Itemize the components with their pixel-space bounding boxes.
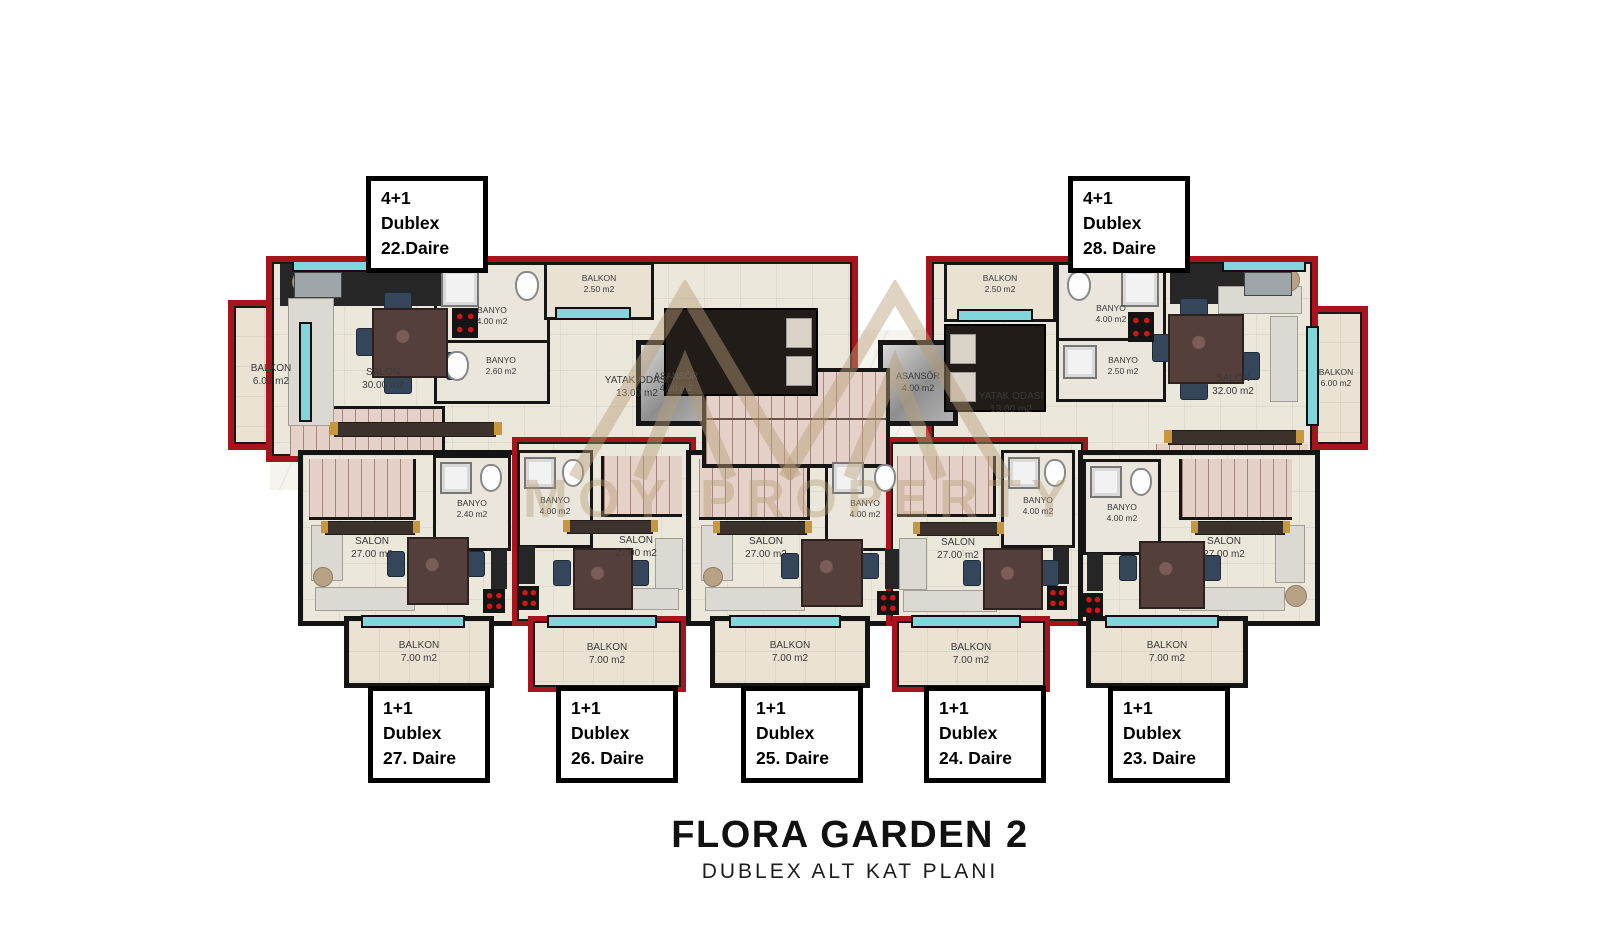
shower bbox=[524, 457, 556, 489]
tv-console-end bbox=[1283, 521, 1290, 533]
room-area: 2.50 m2 bbox=[947, 284, 1053, 295]
room-name: SALON bbox=[328, 366, 438, 379]
sofa bbox=[315, 587, 415, 611]
room-area: 7.00 m2 bbox=[587, 654, 628, 667]
unit-tag-28: 4+1 Dublex 28. Daire bbox=[1068, 176, 1190, 273]
pouf bbox=[1285, 585, 1307, 607]
unit-27-balkon: BALKON 7.00 m2 bbox=[344, 616, 494, 688]
tag-line: 23. Daire bbox=[1123, 746, 1215, 771]
chair bbox=[467, 551, 485, 577]
tv-console-end bbox=[413, 521, 420, 533]
room-name: BANYO bbox=[436, 498, 508, 509]
room-area: 2.40 m2 bbox=[436, 509, 508, 520]
tv-console bbox=[1195, 521, 1285, 535]
pillow bbox=[950, 334, 976, 364]
shower bbox=[1121, 269, 1159, 307]
room-label-banyo-23: BANYO 4.00 m2 bbox=[1086, 502, 1158, 524]
unit-tag-23: 1+1 Dublex 23. Daire bbox=[1108, 686, 1230, 783]
tag-line: 24. Daire bbox=[939, 746, 1031, 771]
room-name: BALKON bbox=[251, 362, 292, 375]
unit-tag-24: 1+1 Dublex 24. Daire bbox=[924, 686, 1046, 783]
unit-25-balkon: BALKON 7.00 m2 bbox=[710, 616, 870, 688]
chair bbox=[963, 560, 981, 586]
stove-hob bbox=[1047, 586, 1067, 610]
room-area: 4.00 m2 bbox=[520, 506, 590, 517]
sofa bbox=[705, 587, 805, 611]
chair bbox=[861, 553, 879, 579]
unit-23-balkon: BALKON 7.00 m2 bbox=[1086, 616, 1248, 688]
room-label-balkon-26: BALKON 7.00 m2 bbox=[587, 641, 628, 667]
kitchen-sink bbox=[1244, 272, 1292, 296]
window-strip bbox=[957, 309, 1033, 322]
room-name: BALKON bbox=[1147, 639, 1188, 652]
unit-tag-25: 1+1 Dublex 25. Daire bbox=[741, 686, 863, 783]
tv-console-end bbox=[321, 521, 328, 533]
room-name: BALKON bbox=[1319, 367, 1354, 378]
window-strip bbox=[1306, 326, 1319, 426]
room-name: BALKON bbox=[547, 273, 651, 284]
room-name: ASANSÖR bbox=[654, 371, 698, 383]
tag-line: Dublex bbox=[571, 721, 663, 746]
stairs bbox=[897, 456, 996, 517]
window-strip bbox=[547, 615, 657, 628]
unit-25: BANYO 4.00 m2 SALON 27.00 m2 bbox=[686, 450, 918, 626]
tag-line: 22.Daire bbox=[381, 236, 473, 261]
pouf bbox=[703, 567, 723, 587]
room-area: 2.50 m2 bbox=[1083, 366, 1163, 377]
tv-console bbox=[717, 521, 807, 535]
room-area: 7.00 m2 bbox=[399, 652, 440, 665]
room-area: 13.00 m2 bbox=[946, 403, 1076, 416]
unit-24-balkon: BALKON 7.00 m2 bbox=[892, 616, 1050, 692]
stove-hob bbox=[1083, 593, 1103, 617]
tag-line: Dublex bbox=[1083, 211, 1175, 236]
toilet bbox=[515, 271, 539, 301]
room-name: BALKON bbox=[770, 639, 811, 652]
tv-console-end bbox=[651, 520, 658, 532]
room-name: SALON bbox=[591, 534, 681, 547]
tag-line: Dublex bbox=[383, 721, 475, 746]
elevator-right-label: ASANSÖR 4.00 m2 bbox=[896, 371, 940, 394]
stairs bbox=[699, 459, 810, 520]
chair bbox=[631, 560, 649, 586]
room-area: 7.00 m2 bbox=[770, 652, 811, 665]
tv-console-end bbox=[713, 521, 720, 533]
tv-console-end bbox=[1191, 521, 1198, 533]
room-area: 7.00 m2 bbox=[951, 654, 992, 667]
room-area: 4.00 m2 bbox=[437, 316, 547, 327]
tag-line: 26. Daire bbox=[571, 746, 663, 771]
kitchen-counter bbox=[491, 549, 507, 589]
chair bbox=[1041, 560, 1059, 586]
window-strip bbox=[555, 307, 631, 320]
shower bbox=[440, 462, 472, 494]
room-area: 27.00 m2 bbox=[913, 549, 1003, 562]
stairs-divider bbox=[706, 418, 886, 420]
window-strip bbox=[299, 322, 312, 422]
room-area: 4.00 m2 bbox=[1086, 513, 1158, 524]
tag-line: 4+1 bbox=[1083, 186, 1175, 211]
room-name: BALKON bbox=[399, 639, 440, 652]
room-name: BALKON bbox=[587, 641, 628, 654]
room-label-balkon-25: BALKON 7.00 m2 bbox=[770, 639, 811, 665]
tag-line: 1+1 bbox=[1123, 696, 1215, 721]
toilet bbox=[1067, 271, 1091, 301]
room-name: BANYO bbox=[828, 498, 902, 509]
tag-line: Dublex bbox=[1123, 721, 1215, 746]
toilet bbox=[1130, 468, 1152, 496]
room-area: 6.00 m2 bbox=[251, 375, 292, 388]
window-strip bbox=[1105, 615, 1219, 628]
floor-plan-canvas: BALKON 6.00 m2 BALKON 6.00 m2 BANYO 4.00… bbox=[0, 0, 1600, 937]
room-name: SALON bbox=[913, 536, 1003, 549]
title-block: FLORA GARDEN 2 DUBLEX ALT KAT PLANI bbox=[450, 814, 1250, 884]
room-area: 2.60 m2 bbox=[461, 366, 541, 377]
pillow bbox=[786, 318, 812, 348]
toilet bbox=[480, 464, 502, 492]
kitchen-counter bbox=[519, 546, 535, 584]
room-area: 27.00 m2 bbox=[1179, 548, 1269, 561]
room-label-salon-23: SALON 27.00 m2 bbox=[1179, 535, 1269, 561]
tv-console-end bbox=[997, 522, 1004, 534]
room-name: BANYO bbox=[461, 355, 541, 366]
stove-hob bbox=[483, 589, 505, 613]
room-label-banyo-27: BANYO 2.40 m2 bbox=[436, 498, 508, 520]
room-label-banyo-25: BANYO 4.00 m2 bbox=[828, 498, 902, 520]
room-name: SALON bbox=[1179, 535, 1269, 548]
unit-27: BANYO 2.40 m2 SALON 27.00 m2 bbox=[298, 450, 522, 626]
stairs bbox=[1179, 459, 1292, 520]
unit-26: BANYO 4.00 m2 SALON 27.00 m2 bbox=[512, 437, 696, 626]
shower bbox=[441, 269, 479, 307]
toilet bbox=[562, 459, 584, 487]
room-name: BANYO bbox=[1086, 502, 1158, 513]
room-name: YATAK ODASI bbox=[946, 390, 1076, 403]
window-strip bbox=[911, 615, 1021, 628]
shower bbox=[832, 462, 864, 494]
room-name: ASANSÖR bbox=[896, 371, 940, 383]
stairs bbox=[309, 459, 416, 520]
room-name: BANYO bbox=[437, 305, 547, 316]
unit-28-balkon-top: BALKON 2.50 m2 bbox=[944, 262, 1056, 322]
room-name: BALKON bbox=[951, 641, 992, 654]
room-area: 4.00 m2 bbox=[1004, 506, 1072, 517]
tv-console-end bbox=[913, 522, 920, 534]
unit-24: BANYO 4.00 m2 SALON 27.00 m2 bbox=[886, 437, 1088, 626]
tv-console-end bbox=[563, 520, 570, 532]
room-area: 4.00 m2 bbox=[654, 383, 698, 395]
room-label-salon-28: SALON 32.00 m2 bbox=[1178, 372, 1288, 398]
room-name: SALON bbox=[327, 535, 417, 548]
room-name: BANYO bbox=[1059, 303, 1163, 314]
room-area: 30.00 m2 bbox=[328, 379, 438, 392]
tag-line: Dublex bbox=[381, 211, 473, 236]
kitchen-sink bbox=[294, 272, 342, 298]
shower bbox=[1090, 466, 1122, 498]
stairs bbox=[601, 456, 682, 517]
tag-line: Dublex bbox=[756, 721, 848, 746]
room-name: BANYO bbox=[520, 495, 590, 506]
room-area: 4.00 m2 bbox=[828, 509, 902, 520]
tv-console-end bbox=[330, 422, 338, 435]
room-label-balkon-27: BALKON 7.00 m2 bbox=[399, 639, 440, 665]
tag-line: Dublex bbox=[939, 721, 1031, 746]
room-label-salon-25: SALON 27.00 m2 bbox=[721, 535, 811, 561]
tv-console bbox=[334, 422, 496, 437]
room-label-balkon-side-22: BALKON 6.00 m2 bbox=[251, 362, 292, 388]
pillow bbox=[786, 356, 812, 386]
room-name: BANYO bbox=[1004, 495, 1072, 506]
tag-line: 1+1 bbox=[571, 696, 663, 721]
room-area: 4.00 m2 bbox=[1059, 314, 1163, 325]
tag-line: 27. Daire bbox=[383, 746, 475, 771]
unit-22-banyo-small: BANYO 2.60 m2 bbox=[434, 340, 550, 404]
tag-line: 4+1 bbox=[381, 186, 473, 211]
room-label-banyo-big-28: BANYO 4.00 m2 bbox=[1059, 303, 1163, 325]
room-label-banyo-big-22: BANYO 4.00 m2 bbox=[437, 305, 547, 327]
room-name: SALON bbox=[1178, 372, 1288, 385]
room-area: 27.00 m2 bbox=[591, 547, 681, 560]
room-area: 2.50 m2 bbox=[547, 284, 651, 295]
tv-console bbox=[917, 522, 999, 536]
window-strip bbox=[1222, 259, 1306, 272]
room-label-banyo-small-28: BANYO 2.50 m2 bbox=[1083, 355, 1163, 377]
unit-tag-27: 1+1 Dublex 27. Daire bbox=[368, 686, 490, 783]
room-area: 27.00 m2 bbox=[721, 548, 811, 561]
room-label-balkon-23: BALKON 7.00 m2 bbox=[1147, 639, 1188, 665]
unit-24-banyo: BANYO 4.00 m2 bbox=[1001, 450, 1075, 548]
tag-line: 1+1 bbox=[939, 696, 1031, 721]
tv-console-end bbox=[1164, 430, 1172, 443]
kitchen-counter bbox=[1087, 553, 1103, 591]
room-label-banyo-small-22: BANYO 2.60 m2 bbox=[461, 355, 541, 377]
room-label-balkon-top-22: BALKON 2.50 m2 bbox=[547, 273, 651, 295]
room-area: 32.00 m2 bbox=[1178, 385, 1288, 398]
room-label-salon-24: SALON 27.00 m2 bbox=[913, 536, 1003, 562]
room-name: BANYO bbox=[1083, 355, 1163, 366]
tv-console-end bbox=[805, 521, 812, 533]
room-label-yatak-28: YATAK ODASI 13.00 m2 bbox=[946, 390, 1076, 416]
unit-23: BANYO 4.00 m2 SALON 27.00 m2 bbox=[1078, 450, 1320, 626]
window-strip bbox=[361, 615, 465, 628]
room-label-banyo-24: BANYO 4.00 m2 bbox=[1004, 495, 1072, 517]
tv-console-end bbox=[494, 422, 502, 435]
tv-console-end bbox=[1296, 430, 1304, 443]
room-label-salon-27: SALON 27.00 m2 bbox=[327, 535, 417, 561]
toilet bbox=[874, 464, 896, 492]
tag-line: 28. Daire bbox=[1083, 236, 1175, 261]
room-name: BALKON bbox=[947, 273, 1053, 284]
elevator-left-label: ASANSÖR 4.00 m2 bbox=[654, 371, 698, 394]
tv-console bbox=[325, 521, 415, 535]
tv-console bbox=[1168, 430, 1302, 445]
room-area: 4.00 m2 bbox=[896, 383, 940, 395]
room-label-salon-22: SALON 30.00 m2 bbox=[328, 366, 438, 392]
tag-line: 1+1 bbox=[383, 696, 475, 721]
toilet bbox=[1044, 459, 1066, 487]
stove-hob bbox=[877, 591, 899, 615]
unit-tag-26: 1+1 Dublex 26. Daire bbox=[556, 686, 678, 783]
chair bbox=[1119, 555, 1137, 581]
window-strip bbox=[729, 615, 841, 628]
room-area: 27.00 m2 bbox=[327, 548, 417, 561]
pouf bbox=[313, 567, 333, 587]
room-label-salon-26: SALON 27.00 m2 bbox=[591, 534, 681, 560]
tv-console bbox=[567, 520, 653, 534]
stove-hob bbox=[519, 586, 539, 610]
page-title: FLORA GARDEN 2 bbox=[450, 814, 1250, 857]
room-area: 6.00 m2 bbox=[1319, 378, 1354, 389]
room-area: 7.00 m2 bbox=[1147, 652, 1188, 665]
tag-line: 1+1 bbox=[756, 696, 848, 721]
unit-26-balkon: BALKON 7.00 m2 bbox=[528, 616, 686, 692]
unit-28: BALKON 2.50 m2 YATAK ODASI 13.00 m2 BANY… bbox=[926, 256, 1318, 466]
page-subtitle: DUBLEX ALT KAT PLANI bbox=[450, 860, 1250, 884]
room-name: SALON bbox=[721, 535, 811, 548]
room-label-balkon-top-28: BALKON 2.50 m2 bbox=[947, 273, 1053, 295]
room-label-balkon-side-28: BALKON 6.00 m2 bbox=[1319, 367, 1354, 389]
shower bbox=[1008, 457, 1040, 489]
unit-22-balkon-top: BALKON 2.50 m2 bbox=[544, 262, 654, 320]
tag-line: 25. Daire bbox=[756, 746, 848, 771]
room-label-banyo-26: BANYO 4.00 m2 bbox=[520, 495, 590, 517]
unit-tag-22: 4+1 Dublex 22.Daire bbox=[366, 176, 488, 273]
chair bbox=[553, 560, 571, 586]
room-label-balkon-24: BALKON 7.00 m2 bbox=[951, 641, 992, 667]
